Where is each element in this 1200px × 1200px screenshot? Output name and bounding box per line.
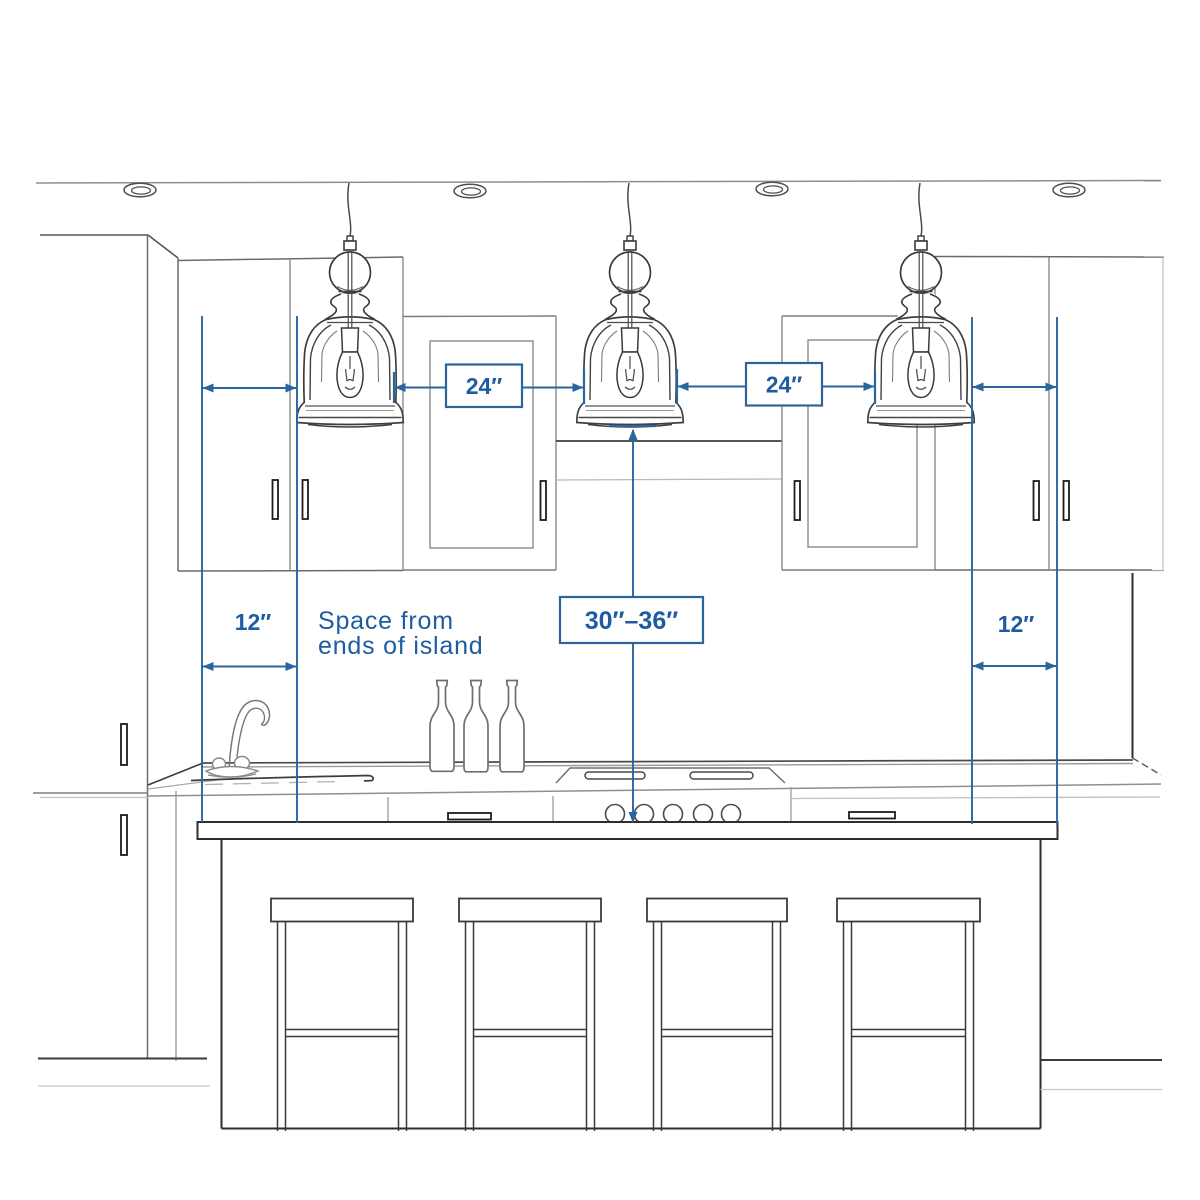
- svg-text:12″: 12″: [235, 609, 272, 635]
- svg-text:30″–36″: 30″–36″: [585, 607, 678, 635]
- svg-text:Space from: Space from: [318, 607, 454, 635]
- svg-text:24″: 24″: [466, 373, 503, 399]
- svg-text:24″: 24″: [766, 372, 803, 398]
- svg-text:ends of island: ends of island: [318, 632, 483, 660]
- svg-text:12″: 12″: [998, 611, 1035, 637]
